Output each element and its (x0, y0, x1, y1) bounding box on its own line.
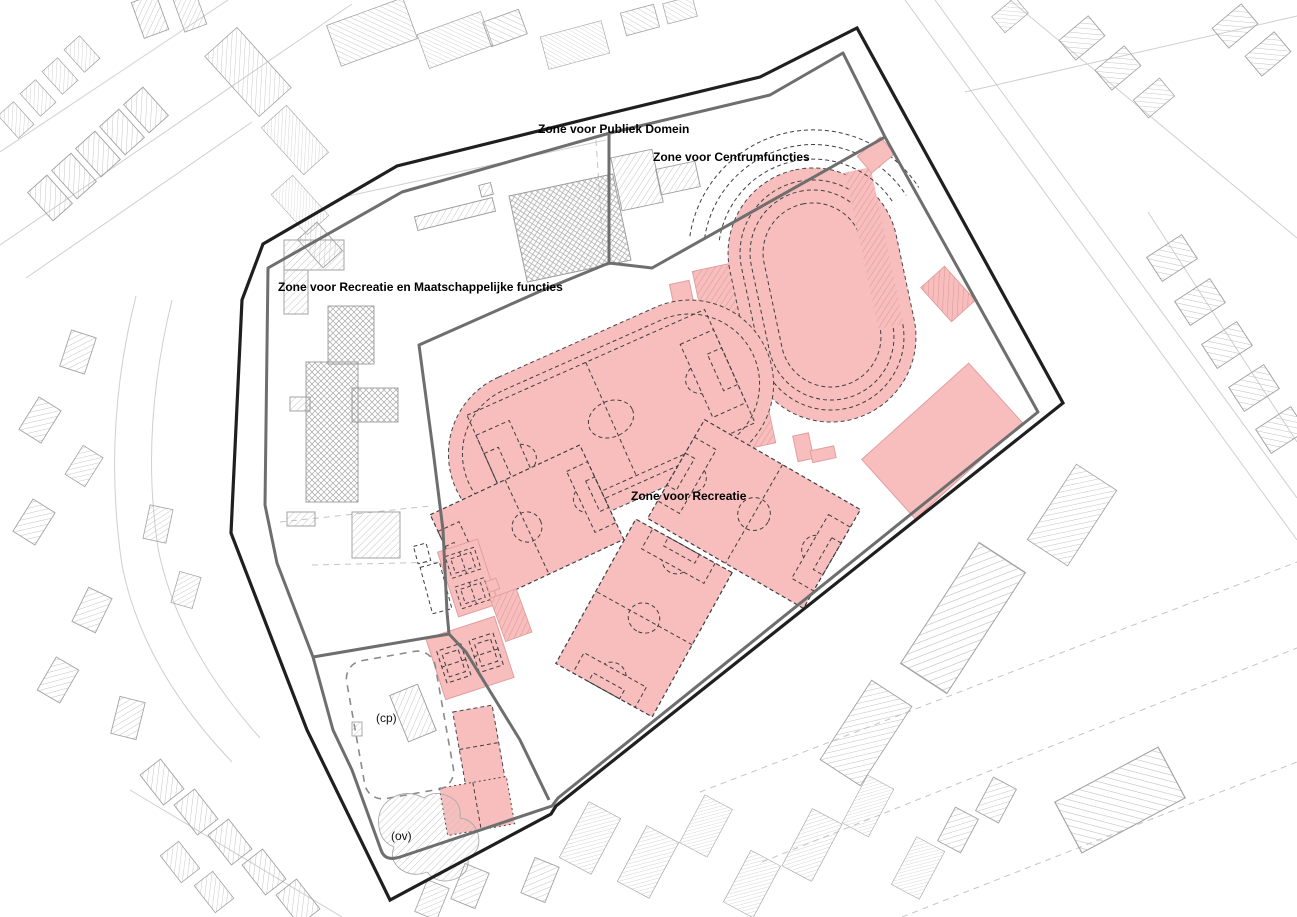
sports-hall-building (509, 174, 631, 282)
label-zone-recreatie: Zone voor Recreatie (631, 489, 747, 503)
label-ov: (ov) (391, 829, 412, 843)
zoning-map-page: Zone voor Publiek Domein Zone voor Centr… (0, 0, 1297, 917)
zoning-map: Zone voor Publiek Domein Zone voor Centr… (0, 0, 1297, 917)
label-zone-recreatie-maatschappelijke: Zone voor Recreatie en Maatschappelijke … (278, 280, 563, 294)
long-thin-building (411, 182, 498, 230)
padel-courts (453, 705, 506, 787)
label-zone-publiek-domein: Zone voor Publiek Domein (538, 122, 689, 136)
label-zone-centrumfuncties: Zone voor Centrumfuncties (653, 150, 810, 164)
label-cp: (cp) (376, 711, 397, 725)
